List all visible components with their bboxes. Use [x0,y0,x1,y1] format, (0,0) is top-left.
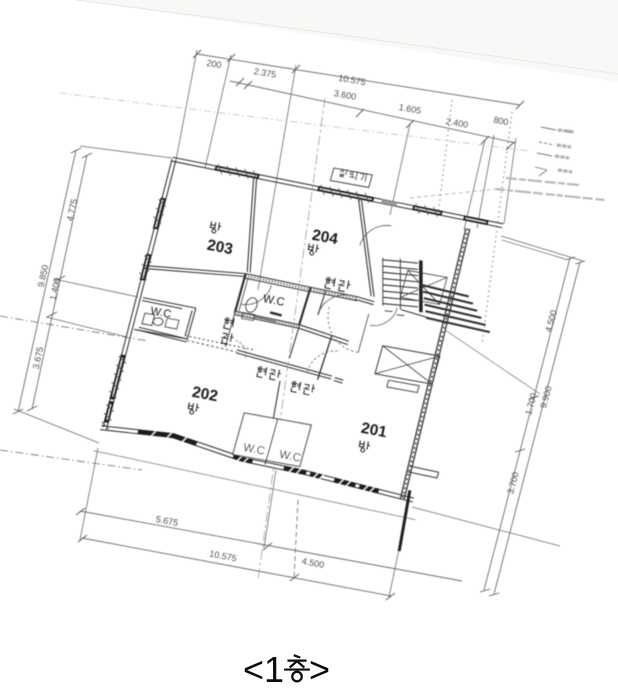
svg-text:>: > [309,649,330,690]
svg-text:<1: <1 [243,649,284,690]
